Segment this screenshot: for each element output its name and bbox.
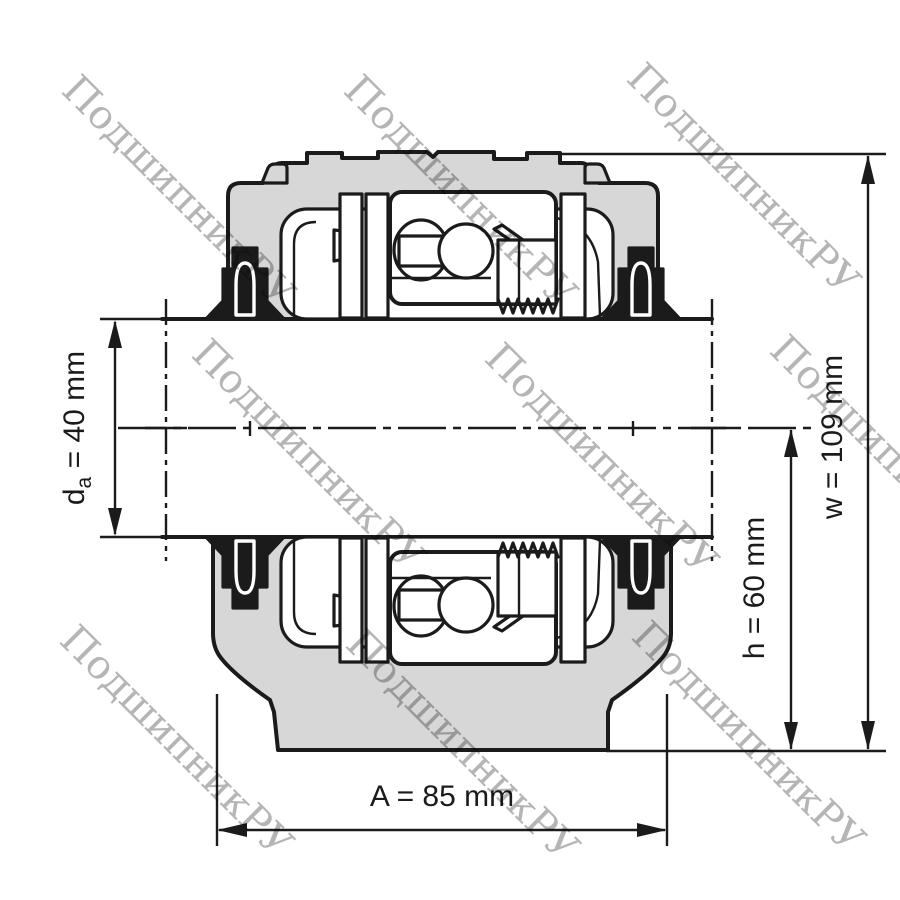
da-arrow-down: [108, 508, 122, 536]
technical-drawing-page: da = 40 mm w = 109 mm h = 60 mm A = 85 m…: [0, 0, 900, 900]
labyrinth-ring-strip-2: [366, 194, 388, 318]
A-arrow-right: [637, 823, 667, 837]
bearing-housing-drawing: da = 40 mm w = 109 mm h = 60 mm A = 85 m…: [0, 0, 900, 900]
dimension-h: h = 60 mm: [738, 429, 798, 750]
cap-boss-right: [585, 164, 610, 183]
roller-guide-ring: [399, 236, 443, 266]
h-label: h = 60 mm: [738, 517, 771, 660]
w-arrow-up: [861, 155, 875, 184]
da-arrow-up: [108, 320, 122, 348]
seal-lip-dome: [632, 263, 650, 315]
labyrinth-ring-strip-1: [340, 194, 362, 318]
cap-boss-left: [262, 164, 287, 183]
dimension-da: da = 40 mm: [58, 320, 122, 536]
da-label: da = 40 mm: [58, 351, 96, 505]
h-arrow-up: [784, 429, 798, 457]
w-arrow-down: [861, 721, 875, 750]
